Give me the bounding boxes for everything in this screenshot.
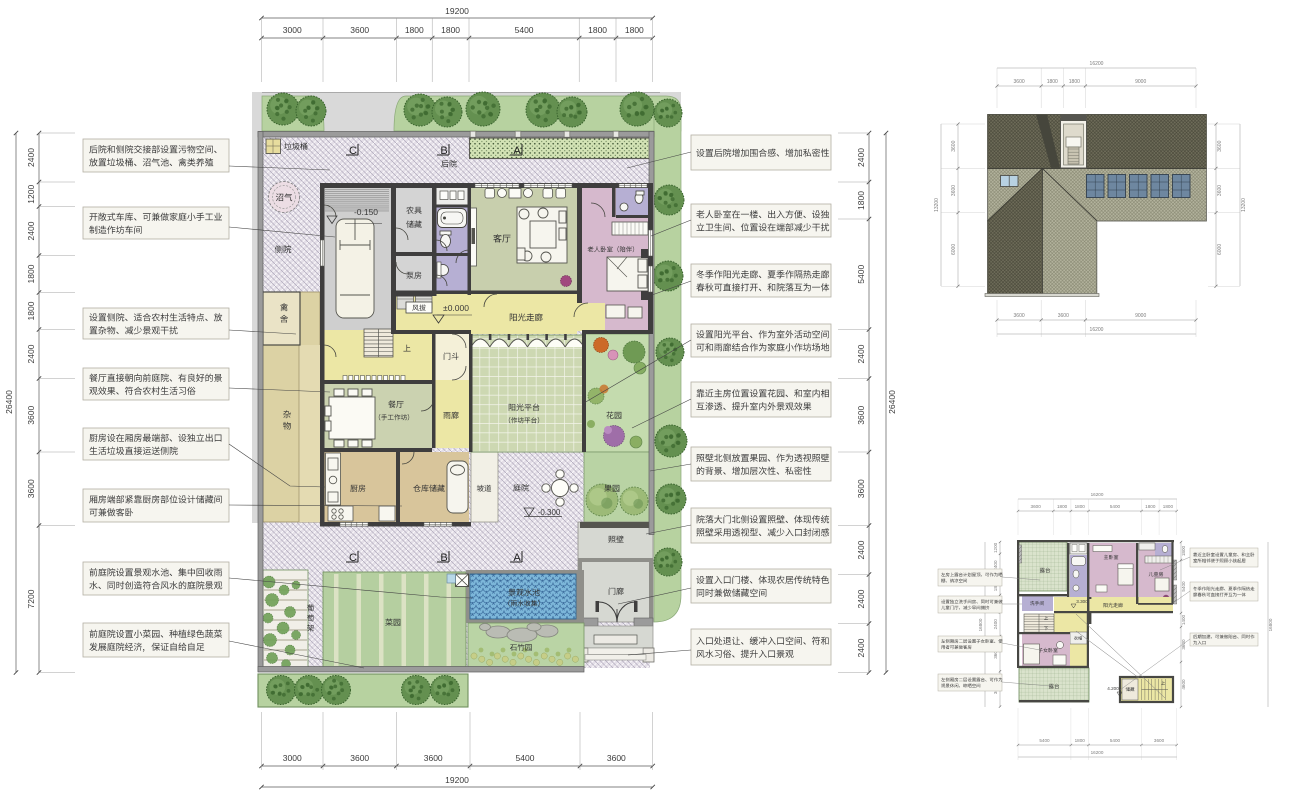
svg-text:3600: 3600 bbox=[26, 479, 36, 498]
svg-text:3600: 3600 bbox=[856, 479, 866, 498]
svg-text:1800: 1800 bbox=[1163, 504, 1174, 509]
svg-text:26400: 26400 bbox=[887, 390, 897, 414]
svg-text:3600: 3600 bbox=[1014, 79, 1025, 85]
svg-text:13200: 13200 bbox=[934, 198, 940, 212]
svg-text:3600: 3600 bbox=[951, 140, 957, 151]
svg-text:1800: 1800 bbox=[1145, 504, 1156, 509]
svg-text:1800: 1800 bbox=[1069, 79, 1080, 85]
svg-text:1800: 1800 bbox=[588, 25, 607, 35]
svg-text:2400: 2400 bbox=[856, 344, 866, 363]
svg-text:3600: 3600 bbox=[607, 753, 626, 763]
svg-text:2400: 2400 bbox=[993, 619, 998, 630]
svg-text:4600: 4600 bbox=[1181, 679, 1186, 690]
svg-text:3600: 3600 bbox=[1217, 185, 1223, 196]
svg-text:3600: 3600 bbox=[424, 753, 443, 763]
svg-text:19200: 19200 bbox=[445, 775, 469, 785]
svg-text:5400: 5400 bbox=[515, 25, 534, 35]
svg-text:5400: 5400 bbox=[856, 265, 866, 284]
svg-text:2400: 2400 bbox=[26, 221, 36, 240]
svg-text:1800: 1800 bbox=[1057, 504, 1068, 509]
svg-text:16200: 16200 bbox=[1090, 61, 1104, 67]
svg-text:2400: 2400 bbox=[26, 148, 36, 167]
svg-text:13200: 13200 bbox=[1241, 198, 1247, 212]
svg-text:1800: 1800 bbox=[441, 25, 460, 35]
svg-text:1800: 1800 bbox=[1181, 545, 1186, 556]
svg-text:3000: 3000 bbox=[283, 25, 302, 35]
svg-text:7200: 7200 bbox=[26, 589, 36, 608]
svg-text:3600: 3600 bbox=[1031, 504, 1042, 509]
svg-text:3600: 3600 bbox=[350, 25, 369, 35]
svg-text:2400: 2400 bbox=[26, 344, 36, 363]
svg-text:1800: 1800 bbox=[856, 191, 866, 210]
svg-text:3600: 3600 bbox=[350, 753, 369, 763]
svg-text:3000: 3000 bbox=[283, 753, 302, 763]
svg-text:3600: 3600 bbox=[1058, 313, 1069, 319]
svg-text:6000: 6000 bbox=[951, 244, 957, 255]
svg-text:16200: 16200 bbox=[1091, 492, 1104, 497]
svg-text:3600: 3600 bbox=[1181, 639, 1186, 650]
svg-text:3600: 3600 bbox=[951, 185, 957, 196]
svg-text:9000: 9000 bbox=[1135, 313, 1146, 319]
svg-text:3.300: 3.300 bbox=[1076, 599, 1088, 604]
svg-text:26400: 26400 bbox=[4, 390, 14, 414]
svg-text:9000: 9000 bbox=[1135, 79, 1146, 85]
svg-text:3600: 3600 bbox=[26, 406, 36, 425]
svg-text:1800: 1800 bbox=[1047, 79, 1058, 85]
svg-text:5400: 5400 bbox=[1110, 504, 1121, 509]
svg-text:1800: 1800 bbox=[405, 25, 424, 35]
svg-text:2400: 2400 bbox=[856, 589, 866, 608]
svg-text:-0.150: -0.150 bbox=[354, 207, 378, 217]
svg-text:16800: 16800 bbox=[978, 618, 983, 631]
svg-text:-0.300: -0.300 bbox=[538, 508, 561, 517]
svg-text:16200: 16200 bbox=[1091, 750, 1104, 755]
svg-text:2400: 2400 bbox=[856, 638, 866, 657]
svg-text:3600: 3600 bbox=[1217, 140, 1223, 151]
svg-text:5400: 5400 bbox=[1110, 738, 1121, 743]
svg-text:1800: 1800 bbox=[26, 301, 36, 320]
svg-text:5400: 5400 bbox=[1181, 581, 1186, 592]
svg-text:1200: 1200 bbox=[26, 185, 36, 204]
svg-text:3600: 3600 bbox=[1014, 313, 1025, 319]
svg-text:1800: 1800 bbox=[1075, 738, 1086, 743]
svg-text:1800: 1800 bbox=[26, 264, 36, 283]
svg-text:5400: 5400 bbox=[1039, 738, 1050, 743]
svg-text:1200: 1200 bbox=[993, 542, 998, 553]
svg-text:16200: 16200 bbox=[1090, 327, 1104, 333]
svg-text:6000: 6000 bbox=[1217, 244, 1223, 255]
svg-text:2400: 2400 bbox=[856, 540, 866, 559]
svg-text:3600: 3600 bbox=[856, 406, 866, 425]
svg-text:2400: 2400 bbox=[856, 148, 866, 167]
svg-text:±0.000: ±0.000 bbox=[443, 303, 469, 313]
svg-text:1400: 1400 bbox=[1181, 614, 1186, 625]
svg-text:1800: 1800 bbox=[1075, 504, 1086, 509]
svg-text:5400: 5400 bbox=[516, 753, 535, 763]
svg-text:16800: 16800 bbox=[1268, 618, 1273, 631]
svg-text:19200: 19200 bbox=[445, 6, 469, 16]
svg-text:3600: 3600 bbox=[1154, 738, 1165, 743]
svg-text:1800: 1800 bbox=[625, 25, 644, 35]
svg-text:4.200: 4.200 bbox=[1107, 686, 1119, 691]
